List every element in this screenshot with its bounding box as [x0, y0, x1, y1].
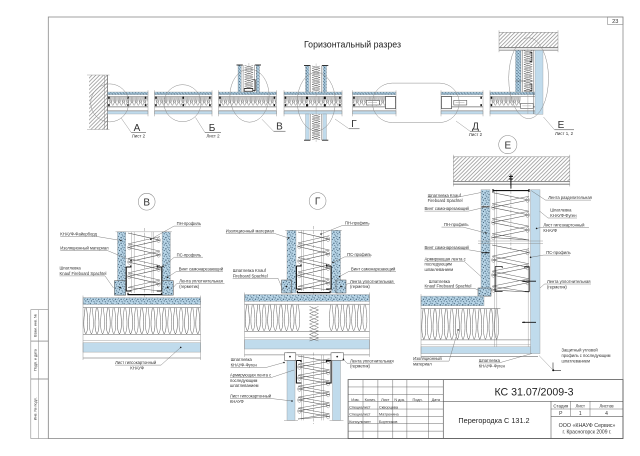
- svg-text:ПС-профиль: ПС-профиль: [347, 252, 372, 257]
- svg-text:Винт самонарезающий: Винт самонарезающий: [179, 267, 224, 272]
- svg-text:Д: Д: [472, 122, 479, 133]
- svg-text:Бортников: Бортников: [379, 420, 397, 424]
- svg-text:В: В: [276, 122, 283, 133]
- svg-text:Б: Б: [209, 123, 216, 134]
- svg-text:КНАУФ-Фуген: КНАУФ-Фуген: [231, 363, 257, 368]
- svg-text:1: 1: [579, 411, 582, 417]
- svg-text:(герметик): (герметик): [350, 364, 370, 369]
- svg-text:ПС-профиль: ПС-профиль: [177, 252, 202, 257]
- svg-text:(герметик): (герметик): [179, 284, 199, 289]
- svg-text:Шпатлевка: Шпатлевка: [60, 266, 82, 271]
- svg-text:материал: материал: [413, 362, 432, 367]
- svg-text:Дата: Дата: [432, 398, 441, 402]
- svg-text:Лист гипсокартонный: Лист гипсокартонный: [543, 223, 585, 228]
- svg-text:Изоляционный: Изоляционный: [413, 356, 442, 361]
- svg-text:Шпатлевка Knauf: Шпатлевка Knauf: [428, 193, 462, 198]
- svg-text:Г: Г: [315, 197, 321, 208]
- svg-text:Knauf Fireboard Spachtel: Knauf Fireboard Spachtel: [60, 271, 107, 276]
- svg-text:ПН-профиль: ПН-профиль: [177, 221, 202, 226]
- svg-text:Скворцова: Скворцова: [379, 405, 399, 409]
- svg-text:Лист 1, 2: Лист 1, 2: [555, 131, 574, 136]
- svg-text:Лист: Лист: [576, 403, 586, 408]
- svg-text:Шпатлевка: Шпатлевка: [550, 208, 572, 213]
- svg-text:КНАУФ-Фуген: КНАУФ-Фуген: [550, 213, 576, 218]
- svg-text:Лента уплотнительная: Лента уплотнительная: [547, 279, 591, 284]
- svg-text:Подп.: Подп.: [413, 398, 423, 402]
- svg-text:Специалист: Специалист: [349, 413, 371, 417]
- svg-text:Е: Е: [504, 140, 511, 151]
- svg-text:Взам. инв. №: Взам. инв. №: [33, 314, 37, 337]
- svg-text:Перегородка С 131.2: Перегородка С 131.2: [458, 416, 529, 425]
- svg-text:Колич.: Колич.: [365, 398, 377, 402]
- svg-text:КНАУФ-Фуген: КНАУФ-Фуген: [479, 363, 505, 368]
- svg-text:КНАУФ: КНАУФ: [230, 399, 244, 404]
- svg-text:Листов: Листов: [599, 403, 614, 408]
- svg-text:(герметик): (герметик): [350, 284, 370, 289]
- svg-text:ПН-профиль: ПН-профиль: [444, 222, 469, 227]
- svg-text:Шпатлевка: Шпатлевка: [479, 358, 501, 363]
- svg-text:КНАУФ: КНАУФ: [543, 228, 557, 233]
- svg-text:ПН-профиль: ПН-профиль: [345, 221, 370, 226]
- svg-text:Fireboard Spachtel: Fireboard Spachtel: [233, 273, 268, 278]
- svg-text:(герметик): (герметик): [547, 285, 567, 290]
- svg-text:ООО «КНАУФ Сервис»: ООО «КНАУФ Сервис»: [559, 423, 616, 429]
- svg-text:Изоляционный материал: Изоляционный материал: [60, 246, 109, 251]
- svg-text:КС 31.07/2009-3: КС 31.07/2009-3: [494, 387, 573, 399]
- svg-text:Защитный угловой: Защитный угловой: [562, 348, 599, 353]
- svg-text:Консультант: Консультант: [349, 420, 371, 424]
- svg-text:КНАУФ-Файерборд: КНАУФ-Файерборд: [60, 232, 97, 237]
- svg-text:ПС-профиль: ПС-профиль: [546, 250, 571, 255]
- svg-text:Лист: Лист: [381, 398, 390, 402]
- svg-text:Изм.: Изм.: [351, 398, 359, 402]
- svg-text:г. Красногорск 2009 г.: г. Красногорск 2009 г.: [563, 430, 612, 436]
- svg-text:Лента уплотнительная: Лента уплотнительная: [350, 279, 394, 284]
- svg-text:профиль с последующим: профиль с последующим: [562, 353, 611, 358]
- svg-text:Fireboard Spachtel: Fireboard Spachtel: [428, 198, 463, 203]
- svg-text:Винт самонарезающий: Винт самонарезающий: [351, 267, 396, 272]
- svg-text:Лист гипсокартонный: Лист гипсокартонный: [115, 360, 157, 365]
- svg-text:Изоляционный материал: Изоляционный материал: [226, 229, 275, 234]
- svg-text:последующим: последующим: [425, 262, 453, 267]
- svg-text:шпаклеванием: шпаклеванием: [425, 267, 454, 272]
- svg-text:Шпатлевка: Шпатлевка: [231, 357, 253, 362]
- svg-text:Горизонтальный разрез: Горизонтальный разрез: [304, 39, 401, 49]
- svg-text:Армирующая лента с: Армирующая лента с: [230, 372, 271, 377]
- svg-text:Шпатлевка Knauf: Шпатлевка Knauf: [233, 268, 267, 273]
- svg-text:Лист 2: Лист 2: [206, 134, 220, 139]
- svg-text:Лента уплотнительная: Лента уплотнительная: [350, 358, 394, 363]
- svg-text:Лист гипсокартонный: Лист гипсокартонный: [230, 394, 272, 399]
- svg-text:Лист 2: Лист 2: [469, 132, 483, 137]
- svg-text:Лента разделительная: Лента разделительная: [548, 195, 592, 200]
- svg-text:23: 23: [612, 19, 618, 25]
- svg-text:Специалист: Специалист: [349, 405, 371, 409]
- svg-text:шпатлеванием: шпатлеванием: [562, 358, 591, 363]
- svg-text:Инв. № подл.: Инв. № подл.: [33, 397, 37, 420]
- svg-text:N док.: N док.: [394, 398, 405, 402]
- svg-text:Матренина: Матренина: [379, 413, 400, 417]
- svg-text:КНАУФ: КНАУФ: [130, 366, 144, 371]
- svg-text:Стадия: Стадия: [553, 403, 569, 408]
- svg-text:Винт самонарезающий: Винт самонарезающий: [425, 245, 470, 250]
- svg-text:Knauf Fireboard Spachtel: Knauf Fireboard Spachtel: [425, 284, 472, 289]
- svg-text:Подп. и дата: Подп. и дата: [33, 348, 37, 371]
- svg-text:Армирующая лента с: Армирующая лента с: [425, 256, 466, 261]
- svg-text:4: 4: [605, 411, 608, 417]
- svg-text:Лента уплотнительная: Лента уплотнительная: [179, 278, 223, 283]
- svg-text:Лист 2: Лист 2: [132, 134, 146, 139]
- svg-text:Е: Е: [558, 120, 565, 131]
- svg-text:шпатлеванием: шпатлеванием: [230, 383, 259, 388]
- svg-text:В: В: [143, 197, 150, 208]
- svg-text:последующим: последующим: [230, 378, 258, 383]
- svg-text:Г: Г: [351, 119, 357, 130]
- svg-text:Винт самонарезающий: Винт самонарезающий: [425, 206, 470, 211]
- svg-text:А: А: [134, 123, 141, 134]
